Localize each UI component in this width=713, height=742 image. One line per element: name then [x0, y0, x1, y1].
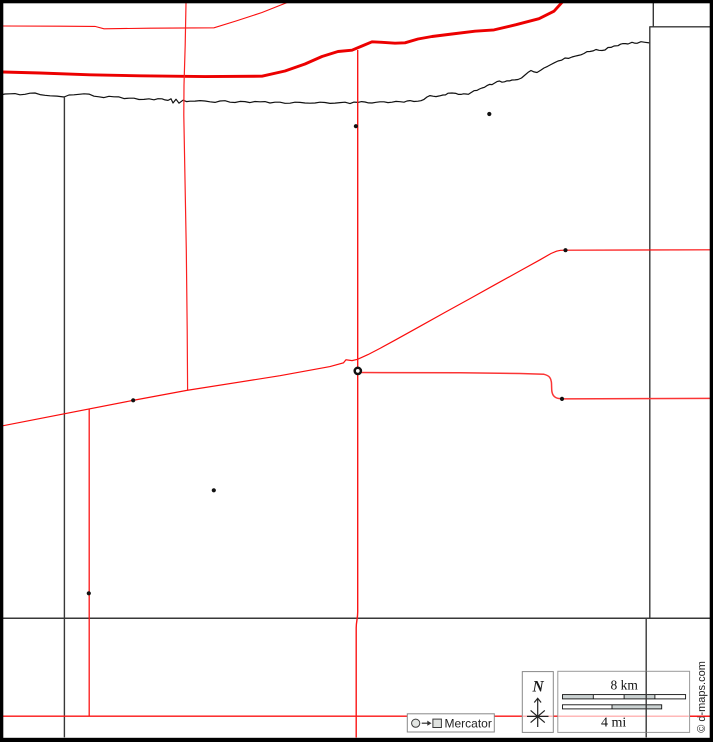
svg-text:N: N: [532, 678, 545, 695]
svg-text:© d-maps.com: © d-maps.com: [696, 661, 708, 733]
svg-text:8 km: 8 km: [611, 677, 639, 692]
svg-text:Mercator: Mercator: [445, 717, 492, 731]
svg-text:4 mi: 4 mi: [601, 715, 626, 730]
